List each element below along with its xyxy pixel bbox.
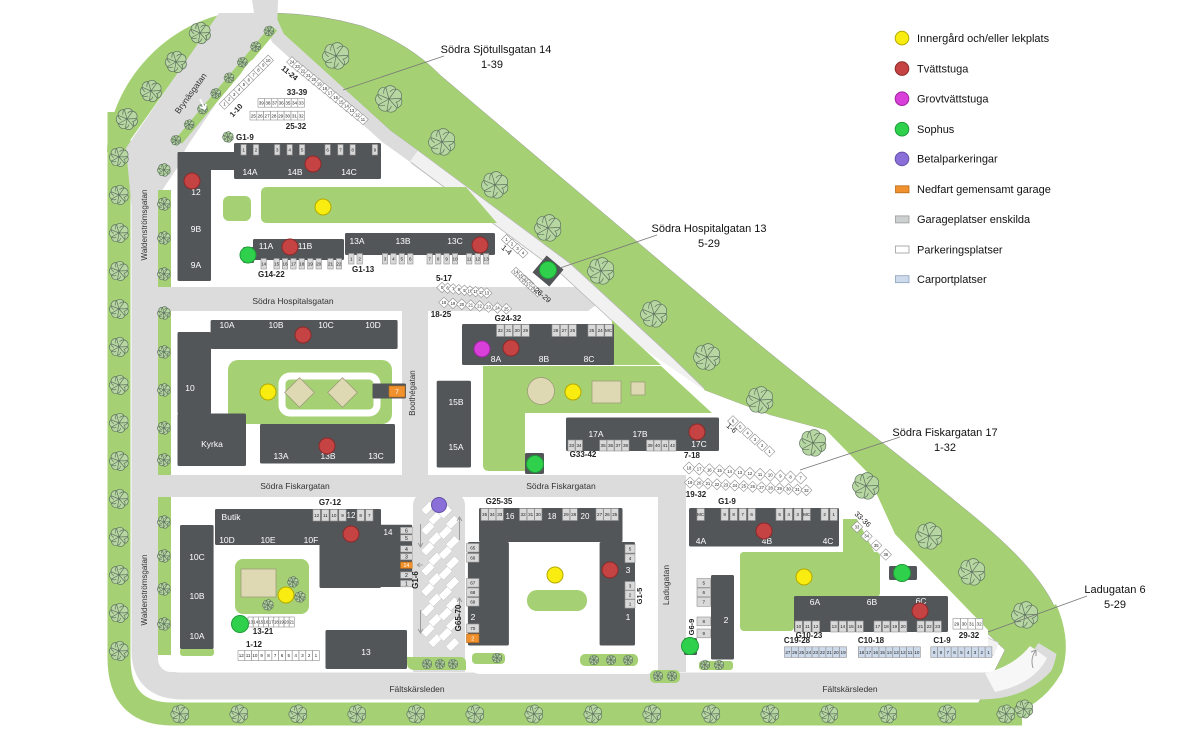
svg-text:14B: 14B [287, 167, 302, 177]
svg-text:10: 10 [331, 513, 337, 518]
svg-text:27: 27 [785, 650, 791, 655]
svg-text:17: 17 [291, 261, 297, 266]
svg-text:3: 3 [626, 565, 631, 575]
svg-text:14: 14 [261, 261, 267, 266]
svg-text:Södra Sjötullsgatan 14: Södra Sjötullsgatan 14 [441, 44, 552, 56]
svg-text:8B: 8B [539, 354, 550, 364]
svg-text:9: 9 [445, 256, 448, 261]
svg-text:13B: 13B [395, 236, 410, 246]
svg-text:6: 6 [281, 653, 284, 658]
svg-text:Södra Fiskargatan: Södra Fiskargatan [526, 481, 596, 491]
svg-text:5: 5 [629, 547, 632, 552]
svg-text:33: 33 [569, 443, 575, 448]
svg-text:1: 1 [350, 256, 353, 261]
svg-text:4: 4 [629, 556, 632, 561]
svg-text:17: 17 [866, 650, 872, 655]
svg-text:MC: MC [697, 512, 705, 517]
svg-text:20: 20 [901, 624, 907, 629]
svg-text:18: 18 [687, 466, 692, 471]
svg-text:9: 9 [933, 650, 936, 655]
svg-text:4A: 4A [696, 536, 707, 546]
svg-text:3: 3 [796, 512, 799, 517]
svg-text:9: 9 [374, 147, 377, 152]
svg-text:5-29: 5-29 [698, 238, 720, 250]
svg-text:5: 5 [401, 256, 404, 261]
svg-text:8: 8 [351, 147, 354, 152]
svg-text:10: 10 [796, 624, 802, 629]
svg-text:36: 36 [608, 443, 614, 448]
svg-text:18-25: 18-25 [431, 310, 452, 319]
svg-text:13: 13 [832, 624, 838, 629]
svg-text:10A: 10A [219, 320, 234, 330]
svg-text:4: 4 [294, 653, 297, 658]
svg-text:13: 13 [484, 291, 489, 296]
svg-text:2: 2 [823, 512, 826, 517]
svg-text:7: 7 [703, 600, 706, 605]
svg-text:8: 8 [732, 512, 735, 517]
svg-text:G65-70: G65-70 [454, 604, 463, 631]
svg-text:23: 23 [486, 305, 491, 310]
svg-text:13: 13 [361, 647, 371, 657]
svg-text:31: 31 [528, 512, 534, 517]
svg-text:13: 13 [894, 650, 900, 655]
svg-text:Parkeringsplatser: Parkeringsplatser [917, 244, 1003, 256]
svg-text:14: 14 [384, 528, 393, 537]
svg-text:17A: 17A [588, 429, 603, 439]
svg-text:28: 28 [553, 328, 559, 333]
svg-text:25: 25 [589, 328, 595, 333]
svg-text:1: 1 [405, 582, 408, 588]
svg-text:39: 39 [647, 443, 653, 448]
svg-text:15: 15 [274, 261, 280, 266]
svg-text:27: 27 [759, 485, 764, 490]
svg-text:13A: 13A [349, 236, 364, 246]
svg-text:G33-42: G33-42 [570, 450, 597, 459]
svg-text:10: 10 [768, 473, 773, 478]
svg-text:6: 6 [953, 650, 956, 655]
svg-text:36: 36 [279, 101, 285, 106]
svg-text:5: 5 [703, 581, 706, 586]
svg-text:8: 8 [267, 653, 270, 658]
svg-text:11: 11 [246, 653, 251, 658]
svg-text:3: 3 [384, 256, 387, 261]
svg-text:30: 30 [536, 512, 542, 517]
svg-text:1: 1 [832, 512, 835, 517]
svg-text:MC: MC [803, 512, 811, 517]
svg-text:2: 2 [358, 256, 361, 261]
svg-text:7: 7 [274, 653, 277, 658]
svg-text:9: 9 [703, 631, 706, 636]
svg-text:32: 32 [521, 512, 527, 517]
svg-text:10: 10 [185, 383, 195, 393]
svg-text:3: 3 [276, 147, 279, 152]
svg-text:27: 27 [597, 512, 603, 517]
svg-text:14: 14 [840, 624, 846, 629]
svg-text:9: 9 [341, 513, 344, 518]
svg-text:14A: 14A [242, 167, 257, 177]
svg-text:C1-9: C1-9 [933, 636, 951, 645]
svg-text:25: 25 [612, 512, 618, 517]
svg-text:13C: 13C [368, 451, 384, 461]
svg-text:14: 14 [727, 469, 732, 474]
svg-text:5: 5 [288, 653, 291, 658]
svg-text:66: 66 [470, 556, 476, 561]
svg-text:29-32: 29-32 [959, 631, 980, 640]
svg-text:14C: 14C [341, 167, 357, 177]
svg-text:G24-32: G24-32 [495, 314, 522, 323]
svg-text:25-32: 25-32 [286, 122, 307, 131]
svg-text:32: 32 [299, 113, 305, 118]
svg-text:9: 9 [723, 512, 726, 517]
svg-text:38: 38 [265, 101, 271, 106]
svg-text:35: 35 [285, 101, 291, 106]
svg-text:7: 7 [368, 513, 371, 518]
svg-text:1-32: 1-32 [934, 442, 956, 454]
svg-text:25: 25 [741, 484, 746, 489]
svg-text:18: 18 [859, 650, 865, 655]
svg-text:15: 15 [880, 650, 886, 655]
svg-text:Södra Fiskargatan 17: Södra Fiskargatan 17 [892, 427, 997, 439]
svg-text:15A: 15A [448, 442, 463, 452]
svg-text:5-29: 5-29 [1104, 599, 1126, 611]
svg-text:12: 12 [748, 471, 753, 476]
svg-text:28: 28 [768, 485, 773, 490]
svg-text:21: 21 [328, 261, 334, 266]
svg-text:19: 19 [892, 624, 898, 629]
svg-text:1: 1 [626, 612, 631, 622]
svg-text:11B: 11B [298, 241, 313, 251]
svg-text:25: 25 [251, 113, 257, 118]
svg-text:Ladugatan 6: Ladugatan 6 [1084, 584, 1145, 596]
svg-text:29: 29 [777, 486, 782, 491]
svg-text:Ladugatan: Ladugatan [661, 565, 671, 605]
svg-text:6: 6 [409, 256, 412, 261]
svg-text:10C: 10C [189, 552, 205, 562]
svg-text:13: 13 [737, 470, 742, 475]
svg-text:17C: 17C [691, 439, 707, 449]
svg-text:1-12: 1-12 [246, 640, 263, 649]
svg-text:7-18: 7-18 [684, 451, 701, 460]
svg-text:34: 34 [576, 443, 582, 448]
svg-text:10C: 10C [318, 320, 334, 330]
svg-text:17: 17 [875, 624, 881, 629]
svg-text:31: 31 [795, 487, 800, 492]
svg-text:37: 37 [272, 101, 278, 106]
svg-text:16: 16 [282, 261, 288, 266]
svg-text:19: 19 [308, 261, 314, 266]
svg-text:5: 5 [778, 512, 781, 517]
svg-text:Sophus: Sophus [917, 124, 955, 136]
svg-text:22: 22 [477, 304, 482, 309]
svg-text:12: 12 [813, 624, 819, 629]
svg-text:10: 10 [266, 58, 271, 63]
svg-text:21: 21 [706, 481, 711, 486]
svg-text:2: 2 [405, 573, 408, 579]
svg-text:33: 33 [497, 512, 503, 517]
svg-text:19: 19 [688, 480, 693, 485]
svg-text:19: 19 [451, 301, 456, 306]
svg-text:12: 12 [239, 653, 245, 658]
svg-text:20: 20 [459, 302, 464, 307]
svg-text:G10-23: G10-23 [796, 631, 823, 640]
svg-text:14: 14 [887, 650, 893, 655]
svg-text:23: 23 [935, 624, 941, 629]
svg-text:39: 39 [259, 101, 265, 106]
svg-text:67: 67 [470, 581, 476, 586]
svg-text:15B: 15B [448, 397, 463, 407]
svg-text:42: 42 [670, 443, 676, 448]
svg-text:18: 18 [548, 512, 557, 521]
svg-text:5: 5 [301, 147, 304, 152]
svg-text:22: 22 [820, 650, 826, 655]
svg-text:32: 32 [498, 328, 504, 333]
svg-text:18: 18 [442, 300, 447, 305]
svg-text:23: 23 [813, 650, 819, 655]
svg-text:3: 3 [301, 653, 304, 658]
svg-text:MC: MC [605, 328, 613, 333]
svg-text:8A: 8A [491, 354, 502, 364]
svg-text:8: 8 [940, 650, 943, 655]
svg-text:4: 4 [288, 147, 291, 152]
svg-text:17B: 17B [632, 429, 647, 439]
svg-text:Södra Hospitalsgatan: Södra Hospitalsgatan [252, 296, 334, 306]
svg-text:10E: 10E [260, 535, 275, 545]
svg-text:7: 7 [428, 256, 431, 261]
svg-text:6A: 6A [810, 597, 821, 607]
svg-text:18: 18 [884, 624, 890, 629]
svg-text:20: 20 [581, 512, 590, 521]
svg-text:13: 13 [484, 256, 490, 261]
svg-text:19-32: 19-32 [686, 490, 707, 499]
svg-text:4: 4 [967, 650, 970, 655]
svg-text:38: 38 [623, 443, 629, 448]
svg-text:G25-35: G25-35 [486, 497, 513, 506]
svg-text:34: 34 [292, 101, 298, 106]
svg-text:68: 68 [470, 590, 476, 595]
svg-text:C10-18: C10-18 [858, 636, 885, 645]
svg-text:9: 9 [260, 653, 263, 658]
svg-text:70: 70 [470, 626, 476, 631]
svg-text:2: 2 [471, 636, 474, 642]
svg-text:13-21: 13-21 [253, 627, 274, 636]
svg-text:10F: 10F [304, 535, 319, 545]
svg-text:G6-9: G6-9 [687, 619, 696, 636]
svg-text:25: 25 [799, 650, 805, 655]
svg-text:36: 36 [883, 552, 888, 557]
svg-text:5: 5 [960, 650, 963, 655]
svg-text:34: 34 [864, 534, 869, 539]
svg-text:22: 22 [927, 624, 933, 629]
svg-text:35: 35 [601, 443, 607, 448]
svg-text:12: 12 [901, 650, 907, 655]
svg-text:Södra Fiskargatan: Södra Fiskargatan [260, 481, 330, 491]
svg-text:33: 33 [299, 101, 305, 106]
svg-text:3: 3 [629, 584, 632, 589]
svg-text:10B: 10B [189, 591, 204, 601]
svg-text:6B: 6B [867, 597, 878, 607]
svg-text:32: 32 [977, 622, 983, 627]
svg-text:10A: 10A [189, 631, 204, 641]
svg-text:Butik: Butik [222, 512, 242, 522]
svg-text:1-39: 1-39 [481, 59, 503, 71]
svg-text:41: 41 [662, 443, 668, 448]
svg-text:31: 31 [292, 113, 298, 118]
svg-text:10B: 10B [268, 320, 283, 330]
svg-text:Boothégatan: Boothégatan [408, 370, 417, 415]
svg-text:31: 31 [506, 328, 512, 333]
svg-text:G7-12: G7-12 [319, 498, 342, 507]
svg-text:8: 8 [703, 619, 706, 624]
svg-text:17: 17 [697, 466, 702, 471]
svg-text:G1-9: G1-9 [718, 497, 736, 506]
svg-text:6: 6 [405, 528, 408, 534]
svg-text:29: 29 [523, 328, 529, 333]
svg-text:13C: 13C [447, 236, 463, 246]
svg-text:11: 11 [323, 513, 328, 518]
svg-text:7: 7 [339, 147, 342, 152]
svg-text:28: 28 [271, 113, 277, 118]
svg-text:26: 26 [750, 484, 755, 489]
svg-text:10D: 10D [365, 320, 381, 330]
svg-text:4: 4 [787, 512, 790, 517]
svg-text:8: 8 [359, 513, 362, 518]
svg-text:1: 1 [315, 653, 318, 658]
svg-text:20: 20 [697, 481, 702, 486]
svg-text:23: 23 [723, 482, 728, 487]
svg-text:1: 1 [987, 650, 990, 655]
svg-text:5: 5 [405, 536, 408, 542]
svg-text:21: 21 [827, 650, 833, 655]
svg-text:16: 16 [707, 467, 712, 472]
svg-text:32: 32 [804, 488, 809, 493]
svg-text:8: 8 [437, 256, 440, 261]
svg-text:19: 19 [841, 650, 847, 655]
svg-text:2: 2 [308, 653, 311, 658]
svg-text:12: 12 [347, 511, 356, 520]
svg-text:26: 26 [570, 328, 576, 333]
svg-text:25: 25 [504, 306, 509, 311]
svg-text:2: 2 [255, 147, 258, 152]
svg-text:7: 7 [741, 512, 744, 517]
svg-text:27: 27 [562, 328, 568, 333]
svg-text:1: 1 [242, 147, 245, 152]
svg-text:11: 11 [361, 117, 366, 122]
svg-text:37: 37 [615, 443, 621, 448]
svg-text:10: 10 [252, 653, 258, 658]
svg-text:Södra Hospitalgatan 13: Södra Hospitalgatan 13 [652, 223, 767, 235]
svg-text:29: 29 [564, 512, 570, 517]
svg-text:40: 40 [655, 443, 661, 448]
svg-text:26: 26 [792, 650, 798, 655]
svg-text:Carportplatser: Carportplatser [917, 274, 987, 286]
svg-text:30: 30 [962, 622, 968, 627]
svg-text:G1-6: G1-6 [411, 571, 420, 589]
svg-text:30: 30 [515, 328, 521, 333]
svg-text:9B: 9B [191, 224, 202, 234]
svg-text:22: 22 [336, 261, 342, 266]
svg-text:28: 28 [571, 512, 577, 517]
svg-text:2: 2 [471, 612, 476, 622]
svg-text:13A: 13A [273, 451, 288, 461]
svg-text:G14-22: G14-22 [258, 270, 285, 279]
svg-text:6: 6 [750, 512, 753, 517]
svg-text:3: 3 [974, 650, 977, 655]
svg-text:30: 30 [285, 113, 291, 118]
svg-text:4: 4 [405, 547, 408, 553]
svg-text:24: 24 [495, 305, 500, 310]
svg-text:G1-5: G1-5 [635, 588, 644, 605]
svg-text:20: 20 [834, 650, 840, 655]
svg-text:2: 2 [981, 650, 984, 655]
svg-text:18: 18 [299, 261, 305, 266]
svg-text:35: 35 [482, 512, 488, 517]
svg-text:21: 21 [289, 620, 294, 625]
svg-text:65: 65 [470, 546, 476, 551]
svg-text:15: 15 [849, 624, 855, 629]
svg-text:G1-13: G1-13 [352, 265, 375, 274]
svg-text:6: 6 [703, 590, 706, 595]
svg-text:Tvättstuga: Tvättstuga [917, 63, 969, 75]
svg-text:11: 11 [805, 624, 810, 629]
svg-text:6: 6 [326, 147, 329, 152]
svg-text:Grovtvättstuga: Grovtvättstuga [917, 94, 989, 106]
svg-text:21: 21 [918, 624, 924, 629]
svg-text:12: 12 [314, 513, 320, 518]
svg-text:24: 24 [806, 650, 812, 655]
svg-text:16: 16 [506, 512, 515, 521]
svg-text:Kyrka: Kyrka [201, 439, 223, 449]
svg-text:29: 29 [278, 113, 284, 118]
svg-text:2: 2 [724, 615, 729, 625]
svg-text:7: 7 [947, 650, 950, 655]
svg-text:22: 22 [715, 482, 720, 487]
svg-text:12: 12 [355, 113, 360, 118]
svg-text:Fältskärsleden: Fältskärsleden [389, 684, 445, 694]
svg-text:8C: 8C [584, 354, 595, 364]
svg-text:3: 3 [405, 555, 408, 561]
svg-text:24: 24 [732, 483, 737, 488]
svg-text:2: 2 [629, 593, 632, 598]
svg-text:Nedfart gemensamt garage: Nedfart gemensamt garage [917, 184, 1051, 196]
svg-text:Waldenströmsgatan: Waldenströmsgatan [140, 555, 149, 626]
svg-text:7: 7 [395, 389, 399, 396]
svg-text:29: 29 [954, 622, 960, 627]
svg-text:9A: 9A [191, 260, 202, 270]
svg-text:33-39: 33-39 [287, 88, 308, 97]
svg-text:34: 34 [490, 512, 496, 517]
svg-text:16: 16 [873, 650, 879, 655]
svg-text:Waldenströmsgatan: Waldenströmsgatan [140, 190, 149, 261]
svg-text:15: 15 [717, 468, 722, 473]
svg-text:26: 26 [605, 512, 611, 517]
svg-text:30: 30 [786, 487, 791, 492]
svg-text:11: 11 [758, 472, 763, 477]
svg-text:10: 10 [914, 650, 920, 655]
svg-text:4C: 4C [823, 536, 834, 546]
svg-text:G1-9: G1-9 [236, 133, 254, 142]
svg-text:11: 11 [467, 256, 472, 261]
svg-text:11: 11 [908, 650, 913, 655]
svg-text:11A: 11A [259, 241, 274, 251]
svg-text:4: 4 [392, 256, 395, 261]
svg-text:69: 69 [470, 600, 476, 605]
svg-text:1: 1 [629, 602, 632, 607]
svg-text:33: 33 [855, 525, 860, 530]
svg-text:26: 26 [258, 113, 264, 118]
svg-text:10: 10 [452, 256, 458, 261]
svg-text:24: 24 [598, 328, 604, 333]
svg-text:Betalparkeringar: Betalparkeringar [917, 154, 998, 166]
